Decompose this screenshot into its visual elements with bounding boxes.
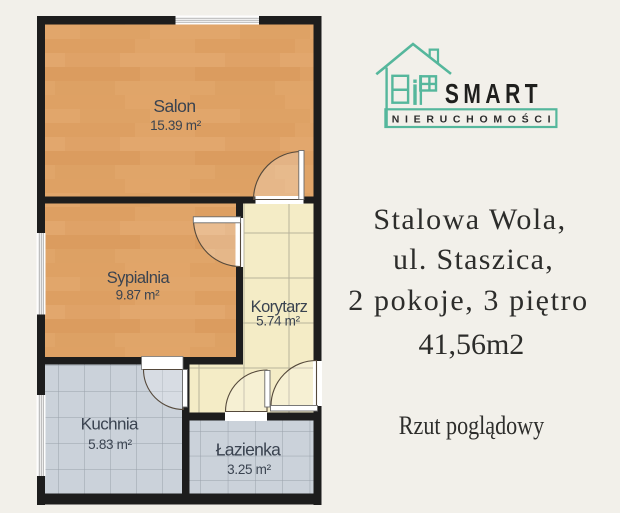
svg-text:Stalowa Wola,: Stalowa Wola, [373, 203, 566, 236]
svg-text:SMART: SMART [445, 79, 542, 110]
svg-text:3.25 m²: 3.25 m² [227, 462, 271, 477]
svg-text:Sypialnia: Sypialnia [107, 269, 171, 287]
svg-text:15.39 m²: 15.39 m² [150, 118, 202, 133]
svg-text:Salon: Salon [153, 96, 195, 116]
svg-text:5.74 m²: 5.74 m² [256, 314, 300, 329]
svg-text:ul. Staszica,: ul. Staszica, [393, 243, 554, 276]
svg-text:NIERUCHOMOŚCI: NIERUCHOMOŚCI [392, 113, 557, 126]
svg-text:Łazienka: Łazienka [216, 439, 281, 459]
svg-text:5.83 m²: 5.83 m² [88, 437, 132, 452]
svg-text:41,56m2: 41,56m2 [418, 328, 524, 361]
svg-text:Rzut poglądowy: Rzut poglądowy [399, 412, 544, 440]
svg-text:9.87 m²: 9.87 m² [116, 287, 160, 302]
svg-text:2 pokoje, 3 piętro: 2 pokoje, 3 piętro [348, 284, 588, 317]
svg-text:Kuchnia: Kuchnia [81, 415, 139, 434]
